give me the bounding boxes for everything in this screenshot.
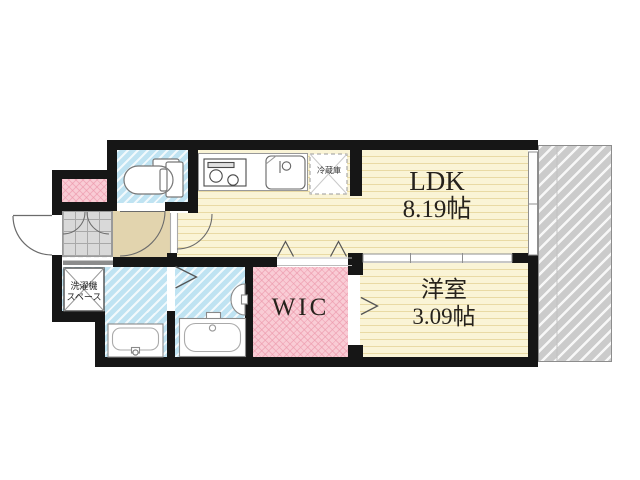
toilet-room — [117, 150, 188, 203]
ldk-label: LDK 8.19帖 — [352, 166, 522, 224]
wic-label: WIC — [253, 294, 348, 322]
ldk-name: LDK — [352, 166, 522, 196]
laundry-line2: スペース — [60, 292, 108, 303]
ldk-room-strip — [177, 213, 198, 257]
wall-wic-west-top — [348, 253, 363, 275]
refrigerator-label: 冷蔵庫 — [308, 167, 350, 176]
balcony — [538, 145, 612, 362]
washroom-lower — [105, 313, 167, 357]
western-room-label: 洋室 3.09帖 — [364, 276, 524, 330]
hallway — [113, 211, 170, 257]
wall-wash-bath — [167, 311, 175, 357]
ldk-area: 8.19帖 — [352, 196, 522, 224]
balcony-window — [528, 152, 538, 255]
wall-right — [528, 255, 538, 367]
wall-bath-wic — [245, 257, 253, 367]
western-room-area: 3.09帖 — [364, 303, 524, 330]
wall-under-toilet-b — [165, 202, 198, 211]
wall-bottom — [95, 357, 538, 367]
laundry-line1: 洗濯機 — [60, 281, 108, 292]
bathroom — [175, 267, 245, 357]
washroom-sliding-door — [62, 257, 113, 266]
wall-shoe-top — [52, 170, 117, 179]
shoe-closet — [62, 179, 107, 202]
laundry-space-label: 洗濯機 スペース — [60, 281, 108, 304]
entrance-door — [13, 216, 52, 256]
floor-plan: LDK 8.19帖 洋室 3.09帖 WIC 冷蔵庫 洗濯機 スペース — [0, 0, 640, 480]
wall-under-toilet-a — [52, 202, 117, 211]
western-room-name: 洋室 — [364, 276, 524, 303]
entry-genkan — [62, 211, 112, 257]
wall-top — [107, 140, 538, 150]
wall-wic-west-bottom — [348, 345, 363, 367]
wall-door-stub — [167, 253, 177, 267]
